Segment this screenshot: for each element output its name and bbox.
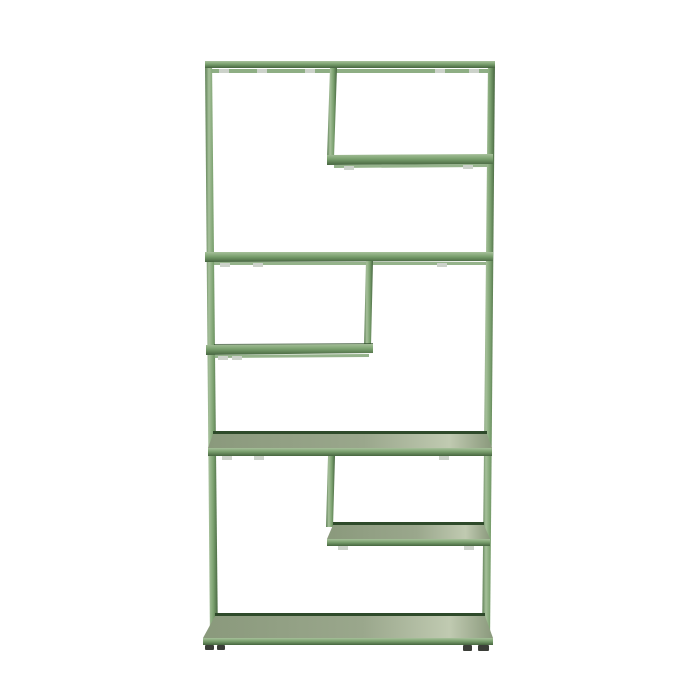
bracket-clip	[437, 263, 447, 267]
fourth-shelf-edge	[208, 448, 492, 456]
foot	[478, 645, 489, 651]
product-photo-canvas	[0, 0, 700, 700]
bracket-clip	[435, 69, 445, 73]
bracket-clip	[220, 263, 230, 267]
bracket-clip	[219, 69, 229, 73]
bracket-clip	[439, 456, 449, 460]
fifth-shelf-edge	[327, 539, 490, 546]
bracket-clip	[222, 456, 232, 460]
middle-divider	[364, 261, 373, 346]
fourth-shelf-top	[208, 434, 492, 448]
foot	[217, 645, 225, 650]
bracket-clip	[253, 263, 263, 267]
bracket-clip	[344, 166, 354, 170]
upper-right-shelf	[327, 154, 493, 165]
top-back-rail	[212, 69, 488, 73]
foot	[205, 645, 214, 650]
lower-divider	[326, 456, 335, 527]
third-shelf	[206, 344, 373, 355]
upper-divider	[327, 68, 337, 158]
bracket-clip	[232, 356, 242, 360]
bracket-clip	[469, 69, 479, 73]
bracket-clip	[254, 456, 264, 460]
right-post	[482, 61, 495, 644]
bracket-clip	[218, 356, 228, 360]
base-shelf-edge	[203, 638, 493, 645]
fifth-shelf-top	[327, 525, 490, 539]
top-rail	[205, 61, 495, 68]
bracket-clip	[463, 165, 473, 169]
bracket-clip	[257, 69, 267, 73]
fifth-shelf-shadow	[333, 522, 484, 525]
bracket-clip	[338, 546, 348, 550]
second-shelf	[205, 252, 493, 262]
fourth-shelf-shadow	[213, 431, 487, 434]
foot	[463, 645, 472, 651]
bracket-clip	[305, 69, 315, 73]
base-shelf-shadow	[215, 613, 485, 616]
base-shelf-top	[203, 616, 493, 638]
shelving-unit-photo	[0, 0, 700, 700]
bracket-clip	[464, 546, 474, 550]
